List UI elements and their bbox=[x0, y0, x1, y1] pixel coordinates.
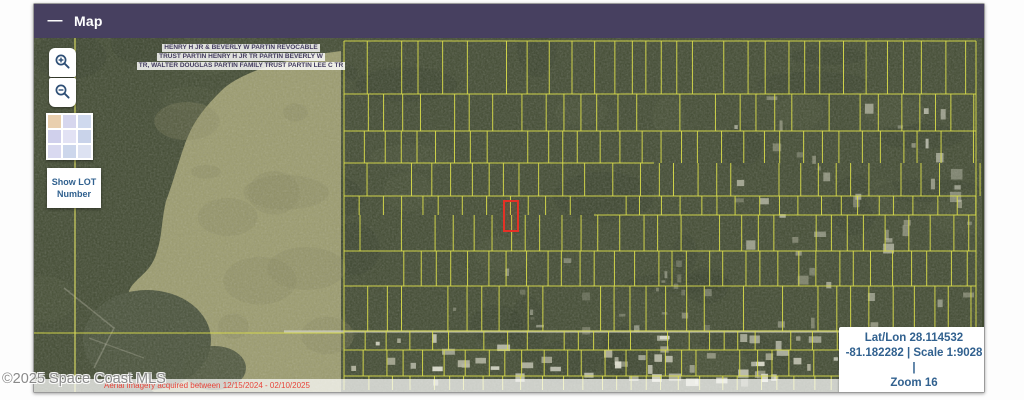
info-line-scale: -81.182282 | Scale 1:9028 | bbox=[843, 346, 984, 376]
imagery-date-note: Aerial imagery acquired between 12/15/20… bbox=[104, 381, 310, 390]
coordinates-info-box: Lat/Lon 28.114532 -81.182282 | Scale 1:9… bbox=[839, 327, 984, 392]
selected-parcel-highlight[interactable] bbox=[503, 200, 519, 232]
zoom-out-button[interactable] bbox=[49, 78, 76, 107]
basemap-thumbnail-icon bbox=[48, 115, 91, 158]
zoom-in-button[interactable] bbox=[49, 48, 76, 77]
map-window: — Map HENRY H JR & BEVERLY W PARTIN REVO… bbox=[33, 3, 985, 393]
window-title: Map bbox=[74, 13, 103, 29]
map-canvas[interactable]: HENRY H JR & BEVERLY W PARTIN REVOCABLE … bbox=[34, 38, 984, 392]
map-window-header: — Map bbox=[34, 4, 984, 38]
show-lot-number-button[interactable]: Show LOT Number bbox=[47, 168, 101, 208]
zoom-out-icon bbox=[54, 83, 71, 103]
minimize-button[interactable]: — bbox=[44, 10, 66, 32]
zoom-in-icon bbox=[54, 53, 71, 73]
info-line-zoom: Zoom 16 bbox=[843, 376, 984, 391]
zoom-control bbox=[49, 48, 76, 107]
info-line-latlon: Lat/Lon 28.114532 bbox=[843, 331, 984, 346]
basemap-toggle-button[interactable] bbox=[46, 113, 93, 160]
